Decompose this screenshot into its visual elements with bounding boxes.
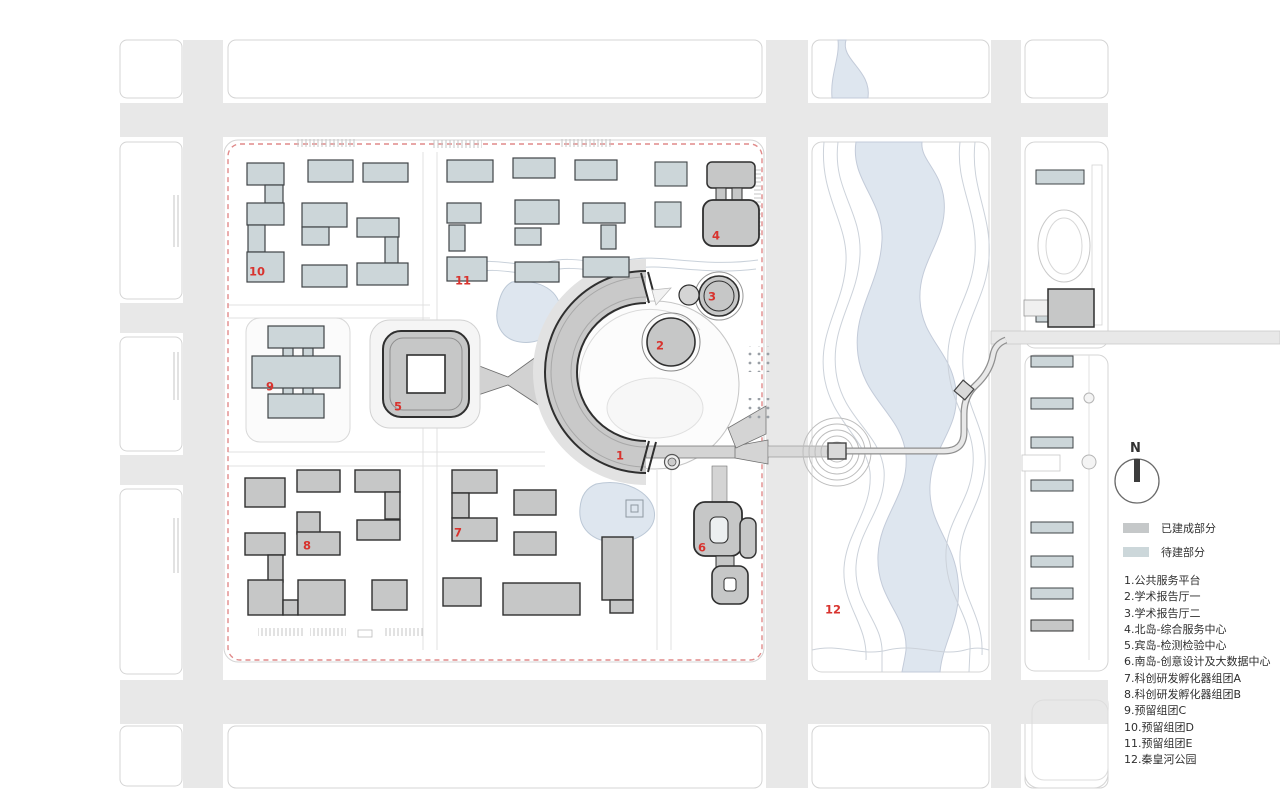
legend-item-9: 9.预留组团C bbox=[1124, 703, 1270, 719]
road-vertical-campus-east bbox=[766, 40, 808, 788]
legend-item-10: 10.预留组团D bbox=[1124, 720, 1270, 736]
legend-item-4: 4.北岛-综合服务中心 bbox=[1124, 622, 1270, 638]
fountain-circle bbox=[665, 455, 680, 470]
legend-item-6: 6.南岛-创意设计及大数据中心 bbox=[1124, 654, 1270, 670]
cluster-9-reserved-group-C bbox=[246, 318, 350, 442]
map-label-11: 11 bbox=[455, 275, 471, 287]
legend-item-11: 11.预留组团E bbox=[1124, 736, 1270, 752]
cluster-11-reserved-group-E bbox=[447, 158, 629, 282]
map-label-3: 3 bbox=[708, 291, 716, 303]
east-built-building bbox=[1048, 289, 1094, 327]
legend-item-5: 5.宾岛-检测检验中心 bbox=[1124, 638, 1270, 654]
planned-swatch bbox=[1123, 547, 1149, 557]
map-label-9: 9 bbox=[266, 381, 274, 393]
site-plan-canvas: 1 2 3 4 5 6 7 8 9 10 11 12 N 已建成部分 待建部分 … bbox=[0, 0, 1280, 808]
planned-swatch-label: 待建部分 bbox=[1161, 547, 1205, 558]
legend-planned: 待建部分 bbox=[1123, 546, 1205, 558]
bridge-node-west bbox=[828, 443, 846, 459]
legend-item-3: 3.学术报告厅二 bbox=[1124, 606, 1270, 622]
map-label-6: 6 bbox=[698, 542, 706, 554]
map-label-1: 1 bbox=[616, 450, 624, 462]
legend-built: 已建成部分 bbox=[1123, 522, 1216, 534]
legend-item-1: 1.公共服务平台 bbox=[1124, 573, 1270, 589]
north-arrow-icon bbox=[1110, 455, 1166, 507]
built-swatch bbox=[1123, 523, 1149, 533]
north-label: N bbox=[1130, 441, 1141, 456]
map-label-4: 4 bbox=[712, 230, 720, 242]
map-label-2: 2 bbox=[656, 340, 664, 352]
built-swatch-label: 已建成部分 bbox=[1161, 523, 1216, 534]
legend-item-7: 7.科创研发孵化器组团A bbox=[1124, 671, 1270, 687]
small-circle-pavilion bbox=[679, 285, 699, 305]
north-arrow: N bbox=[1110, 441, 1170, 505]
road-east-connector bbox=[991, 331, 1280, 344]
building-2-lecture-hall-1 bbox=[642, 313, 700, 371]
legend-item-12: 12.秦皇河公园 bbox=[1124, 752, 1270, 768]
map-label-10: 10 bbox=[249, 266, 265, 278]
legend-list: 1.公共服务平台 2.学术报告厅一 3.学术报告厅二 4.北岛-综合服务中心 5… bbox=[1124, 573, 1270, 769]
map-label-7: 7 bbox=[454, 527, 462, 539]
legend-item-2: 2.学术报告厅一 bbox=[1124, 589, 1270, 605]
building-5-inspection-center bbox=[370, 320, 480, 428]
master-plan-drawing bbox=[0, 0, 1280, 808]
map-label-5: 5 bbox=[394, 401, 402, 413]
legend-item-8: 8.科创研发孵化器组团B bbox=[1124, 687, 1270, 703]
map-label-8: 8 bbox=[303, 540, 311, 552]
road-horizontal-south bbox=[120, 680, 1108, 724]
road-vertical-river-east bbox=[991, 40, 1021, 788]
road-horizontal-north bbox=[120, 103, 1108, 137]
road-vertical-west bbox=[183, 40, 223, 788]
cluster-10-reserved-group-D bbox=[247, 160, 408, 287]
map-label-12: 12 bbox=[825, 604, 841, 616]
